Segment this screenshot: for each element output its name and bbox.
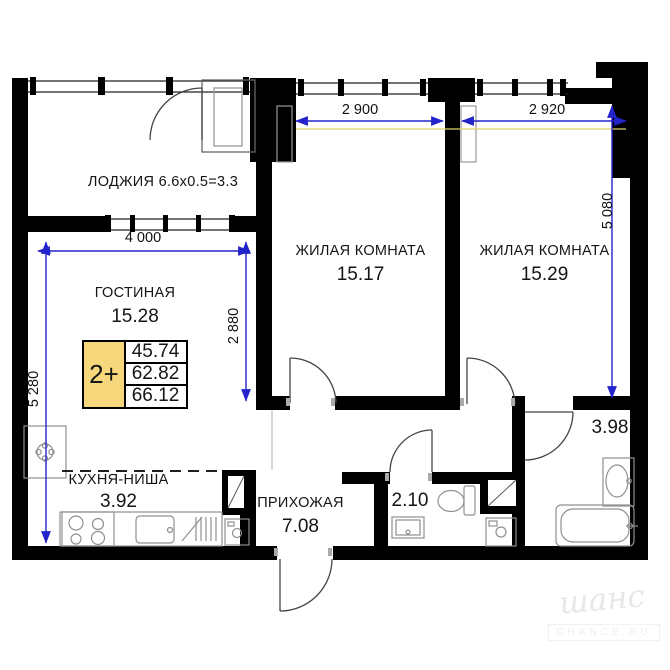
bathroom-door xyxy=(525,412,573,460)
stamp-areas: 45.74 62.82 66.12 xyxy=(124,340,188,409)
window-bedroom2 xyxy=(475,79,568,96)
wall-corridor-3 xyxy=(573,396,648,410)
kitchen-label: КУХНЯ-НИША xyxy=(36,472,201,488)
kitchen-area: 3.92 xyxy=(36,491,201,513)
wall-living-bedroom1 xyxy=(256,162,272,410)
wall-loggia-bottom-right xyxy=(235,216,256,232)
wall-corridor-1 xyxy=(256,396,290,410)
loggia-label: ЛОДЖИЯ 6.6x0.5=3.3 xyxy=(63,174,263,190)
stove-icon xyxy=(62,512,114,546)
watermark-site: CHANCE.RU xyxy=(548,624,660,641)
bedroom1-door xyxy=(290,358,336,403)
floor-plan: ЛОДЖИЯ 6.6x0.5=3.3 ГОСТИНАЯ 15.28 ЖИЛАЯ … xyxy=(0,0,670,670)
wall-corner-bar xyxy=(596,62,648,78)
dim-4000-label: 4 000 xyxy=(93,230,193,246)
stamp-layout-type: 2+ xyxy=(82,340,126,409)
stamp-area-total: 62.82 xyxy=(124,362,188,387)
bedroom1-label: ЖИЛАЯ КОМНАТА xyxy=(268,243,453,259)
washer-bath-icon xyxy=(486,518,516,546)
window-bedroom1 xyxy=(296,79,428,96)
apartment-stamp: 2+ 45.74 62.82 66.12 xyxy=(82,340,188,409)
bath-basin-icon xyxy=(603,458,634,506)
bathtub-icon xyxy=(556,505,638,546)
pier-loggia-bedroom1 xyxy=(250,78,296,162)
wc-door xyxy=(390,430,432,472)
loggia-door xyxy=(150,80,255,152)
toilet-icon xyxy=(438,486,475,515)
dim-2920-label: 2 920 xyxy=(497,102,597,118)
stamp-area-living: 45.74 xyxy=(124,340,188,365)
stamp-area-overall: 66.12 xyxy=(124,384,188,409)
dish-drainer-icon xyxy=(182,517,216,541)
wc-area: 2.10 xyxy=(378,490,442,512)
hallway-label: ПРИХОЖАЯ xyxy=(218,495,383,511)
dim-2900-label: 2 900 xyxy=(310,102,410,118)
wall-corridor-2 xyxy=(335,396,460,410)
bedroom2-area: 15.29 xyxy=(452,264,637,286)
wall-left xyxy=(12,78,28,560)
dim-5080-label: 5 080 xyxy=(600,161,616,261)
bedroom1-area: 15.17 xyxy=(268,264,453,286)
wall-wc-top-left xyxy=(342,472,390,484)
living-room-label: ГОСТИНАЯ xyxy=(55,285,215,301)
bedroom2-door xyxy=(467,358,515,404)
floor-plan-linework xyxy=(0,0,670,670)
windows xyxy=(28,77,568,232)
wc-basin-icon xyxy=(392,517,424,538)
dim-2880-label: 2 880 xyxy=(226,276,242,376)
wall-bottom-left xyxy=(12,546,277,560)
entrance-door xyxy=(280,559,332,611)
hallway-area: 7.08 xyxy=(218,516,383,538)
wall-right xyxy=(630,62,648,560)
dim-5280-label: 5 280 xyxy=(26,339,42,439)
bathroom-area: 3.98 xyxy=(578,417,642,439)
kitchen-counter xyxy=(60,512,222,546)
kitchen-sink-icon xyxy=(136,516,174,543)
living-room-area: 15.28 xyxy=(55,306,215,328)
